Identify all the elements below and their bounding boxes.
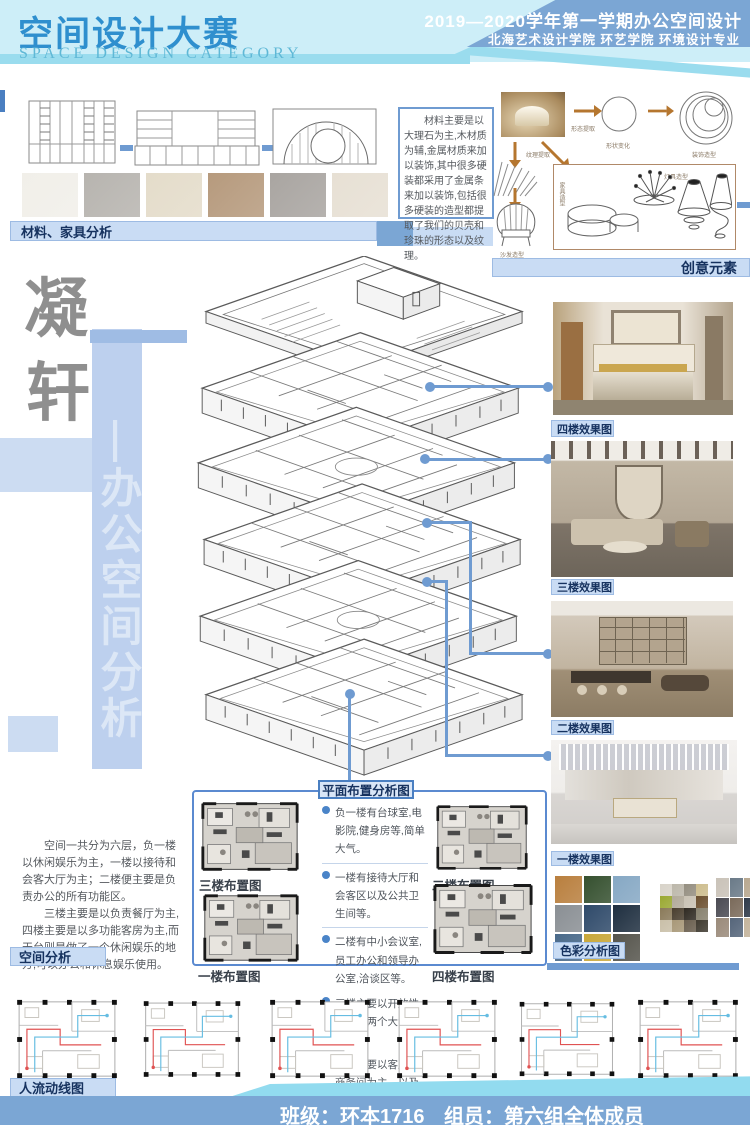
space-analysis-label: 空间分析 — [10, 947, 106, 966]
palette-swatch — [660, 920, 672, 932]
circulation-plan — [140, 996, 244, 1082]
render-floor4-label: 四楼效果图 — [551, 420, 614, 437]
palette-swatch — [684, 908, 696, 920]
bullet-item: 负一楼有台球室,电影院,健身房等,简单大气。 — [322, 800, 428, 864]
palette-swatch — [696, 920, 708, 932]
palette-swatch — [660, 896, 672, 908]
palette-swatch — [696, 884, 708, 896]
design-competition-poster: 空间设计大赛 SPACE DESIGN CATEGORY 2019—2020学年… — [0, 0, 750, 1125]
connector-dot — [422, 577, 432, 587]
palette-swatch — [684, 884, 696, 896]
palette-swatch — [730, 878, 743, 897]
floorplan-1f — [198, 893, 304, 963]
palette-swatch — [672, 908, 684, 920]
shape-sketch-circle — [600, 95, 638, 133]
materials-description: 材料主要是以大理石为主,木材质为辅,金属材质来加以装饰,其中很多硬装都采用了金属… — [404, 114, 488, 264]
palette-swatch — [716, 878, 729, 897]
left-deco-rect-1 — [0, 438, 92, 492]
palette-swatch — [744, 878, 750, 897]
bullet-dot-icon — [322, 871, 330, 879]
sketch-connector-dash-1 — [120, 145, 133, 151]
floorplan-4f — [432, 879, 534, 959]
shell-chair-sketch — [492, 202, 540, 248]
left-edge-accent — [0, 90, 5, 112]
materials-description-box: 材料主要是以大理石为主,木材质为辅,金属材质来加以装饰,其中很多硬装都采用了金属… — [398, 107, 494, 219]
elevation-sketch-1 — [28, 100, 116, 164]
footer-members: 组员：第六组全体成员 — [444, 1100, 644, 1125]
palette-swatch — [730, 918, 743, 937]
palette-swatch — [208, 173, 264, 217]
render-floor2-image — [551, 601, 733, 717]
plan-panel-title: 平面布置分析图 — [318, 780, 414, 799]
furniture-lamp-sketches — [562, 168, 732, 246]
palette-swatch — [584, 876, 611, 903]
shell-reference-photo — [501, 92, 565, 137]
palette-swatch — [684, 920, 696, 932]
connector-dot — [422, 518, 432, 528]
poster-subtitle: SPACE DESIGN CATEGORY — [19, 45, 302, 63]
materials-section-label: 材料、家具分析 — [10, 221, 377, 241]
bullet-item: 二楼有中小会议室,员工办公和领导办公室,洽谈区等。 — [322, 928, 428, 991]
palette-swatch — [716, 918, 729, 937]
connector-line-floor1-b — [445, 580, 448, 757]
palette-swatch — [270, 173, 326, 217]
connector-line-floor4 — [430, 385, 548, 388]
circulation-plan — [632, 996, 744, 1082]
decorative-rings-sketch — [676, 88, 738, 146]
arrow-right-icon — [574, 104, 602, 118]
circulation-plan — [263, 996, 377, 1082]
palette-swatch — [84, 173, 140, 217]
step3-caption: 装饰造型 — [692, 150, 716, 159]
connector-dot — [425, 382, 435, 392]
footer-class: 班级：环本1716 — [280, 1100, 425, 1125]
bullet-dot-icon — [322, 806, 330, 814]
palette-swatch — [660, 908, 672, 920]
palette-swatch — [584, 905, 611, 932]
connector-dot — [345, 689, 355, 699]
right-edge-dash — [737, 202, 750, 208]
connector-line-floor1-c — [445, 754, 548, 757]
connector-line-floor2-a — [427, 521, 472, 524]
connector-line-floor3 — [425, 458, 548, 461]
palette-swatch — [146, 173, 202, 217]
palette-swatch — [744, 898, 750, 917]
floorplan-3f — [200, 800, 300, 873]
elevation-sketch-3 — [272, 108, 377, 165]
connector-dot — [420, 454, 430, 464]
color-analysis-label: 色彩分析图 — [553, 942, 625, 959]
palette-swatch — [555, 905, 582, 932]
palette-swatch — [696, 896, 708, 908]
palette-swatch — [660, 884, 672, 896]
palette-swatch — [22, 173, 78, 217]
render-floor4-image — [553, 302, 733, 415]
bullet-item: 一楼有接待大厅和会客区以及公共卫生间等。 — [322, 864, 428, 929]
palette-swatch — [672, 896, 684, 908]
floorplan-1f-label: 一楼布置图 — [198, 966, 261, 985]
arrow-right-icon — [648, 104, 674, 118]
palette-swatch — [613, 905, 640, 932]
exploded-axonometric-drawing — [166, 256, 564, 778]
palette-swatch — [716, 898, 729, 917]
material-swatches — [22, 173, 402, 217]
palette-swatch — [613, 876, 640, 903]
floorplan-4f-label: 四楼布置图 — [432, 966, 495, 985]
palette-swatch — [684, 896, 696, 908]
circulation-plan — [516, 996, 618, 1082]
palette-swatch — [672, 884, 684, 896]
elevation-sketch-2 — [134, 110, 260, 166]
palette-swatch — [555, 876, 582, 903]
left-deco-rect-2 — [8, 716, 58, 752]
header-school-line: 北海艺术设计学院 环艺学院 环境设计专业 — [488, 29, 740, 48]
circulation-plan — [392, 996, 502, 1082]
color-section-underline — [547, 963, 739, 970]
render-floor2-label: 二楼效果图 — [551, 720, 614, 735]
connector-dot — [543, 382, 553, 392]
project-name-char1: 凝 — [24, 258, 88, 350]
palette-swatch — [332, 173, 388, 217]
connector-line-plan-panel — [348, 693, 351, 783]
palette-swatch — [744, 918, 750, 937]
bullet-dot-icon — [322, 935, 330, 943]
step1-caption: 形态提取 — [571, 124, 595, 133]
connector-line-floor2-c — [469, 652, 548, 655]
circulation-plan — [12, 996, 122, 1082]
step2-caption: 形状变化 — [606, 141, 630, 150]
color-analysis-tones — [660, 884, 708, 932]
palette-swatch — [696, 908, 708, 920]
floorplan-2f — [432, 804, 532, 871]
floorplan-3f-label: 三楼布置图 — [199, 875, 262, 894]
render-floor1-image — [551, 740, 737, 844]
vertical-subtitle: —办公空间分析 — [96, 420, 140, 742]
color-analysis-materials — [716, 878, 750, 938]
render-floor1-label: 一楼效果图 — [551, 851, 614, 866]
connector-line-floor2-b — [469, 521, 472, 655]
render-floor3-image — [551, 441, 733, 577]
palette-swatch — [730, 898, 743, 917]
palette-swatch — [672, 920, 684, 932]
render-floor3-label: 三楼效果图 — [551, 579, 614, 595]
circulation-label: 人流动线图 — [10, 1078, 116, 1097]
project-name-char2: 轩 — [26, 342, 90, 434]
